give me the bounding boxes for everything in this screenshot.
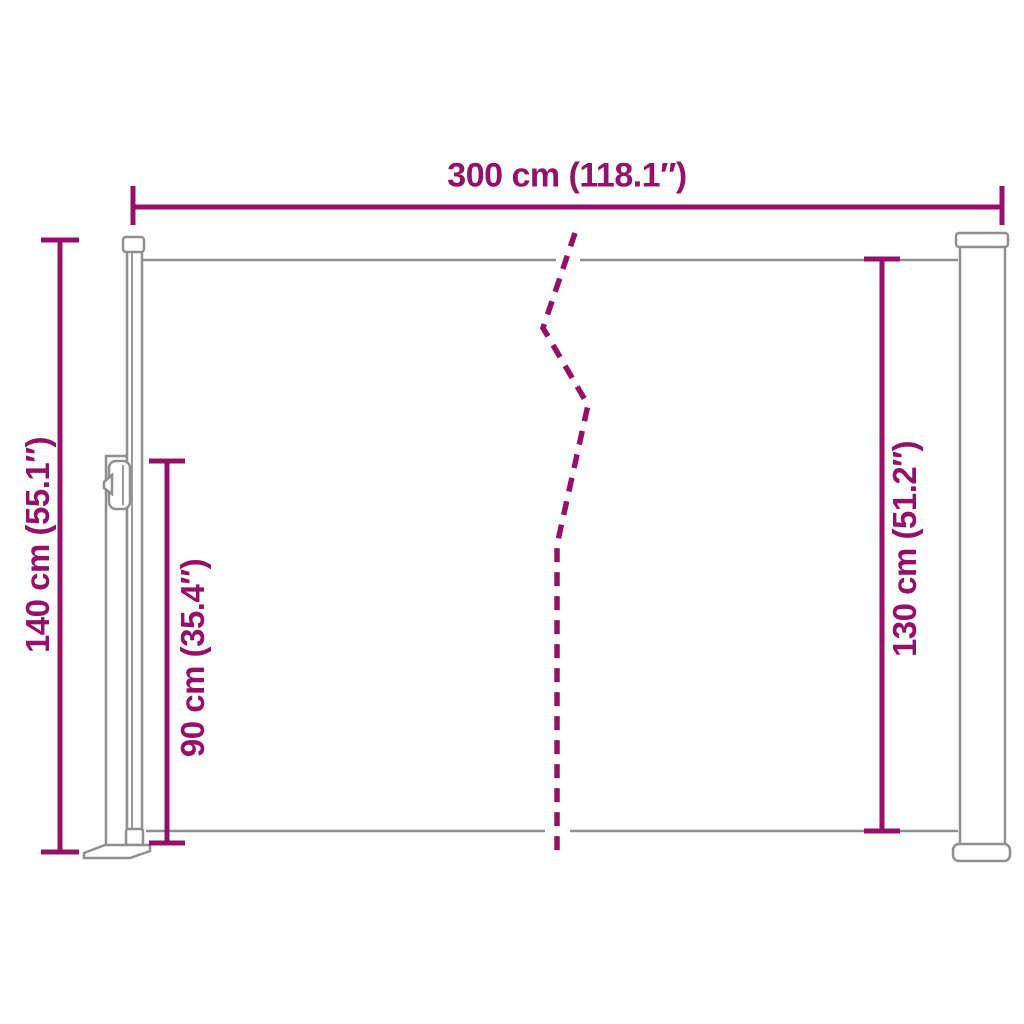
length-break-line bbox=[543, 233, 588, 855]
left-post-top-cap bbox=[123, 237, 144, 252]
left-post-mounting-plate bbox=[106, 456, 127, 846]
dimension-label-top: 300 cm (118.1″) bbox=[447, 157, 686, 196]
cassette-body bbox=[960, 246, 1005, 846]
cassette-bottom-cap bbox=[953, 844, 1010, 861]
left-post-body bbox=[127, 250, 142, 847]
dimension-label-left: 140 cm (55.1″) bbox=[19, 437, 57, 653]
awning-illustration bbox=[84, 233, 1010, 861]
dimension-label-inner: 90 cm (35.4″) bbox=[174, 559, 212, 757]
diagram-canvas bbox=[0, 0, 1024, 1024]
awning-dimension-diagram: 300 cm (118.1″) 140 cm (55.1″) 90 cm (35… bbox=[0, 0, 1024, 1024]
cassette-top-cap bbox=[956, 233, 1008, 247]
post-foot-plate bbox=[84, 845, 150, 858]
post-bottom-clamp bbox=[126, 829, 143, 845]
dimension-label-right: 130 cm (51.2″) bbox=[886, 441, 924, 657]
